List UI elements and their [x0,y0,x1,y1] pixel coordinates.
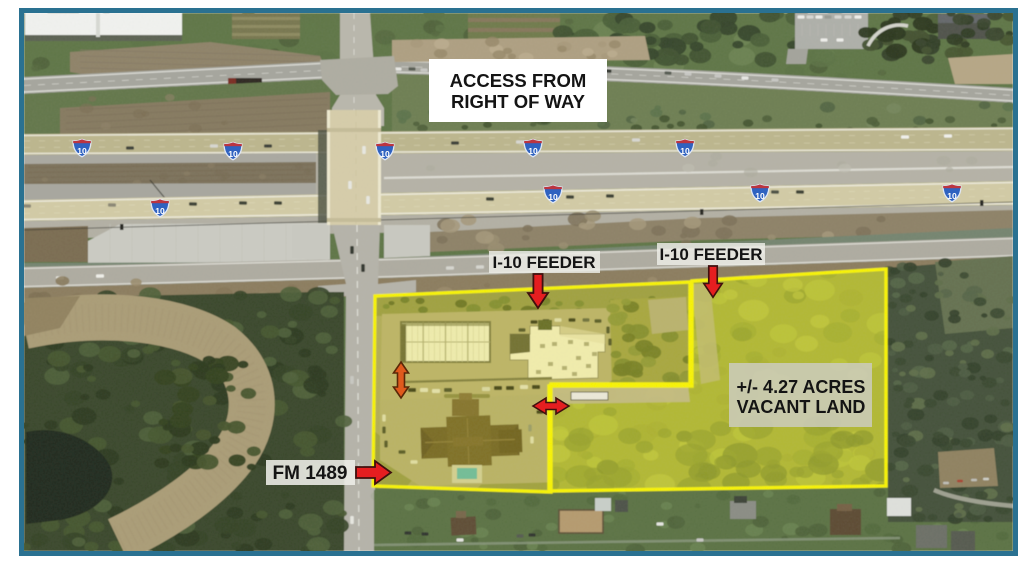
svg-text:I-10 FEEDER: I-10 FEEDER [660,245,763,264]
svg-text:ACCESS FROM: ACCESS FROM [450,70,587,91]
svg-text:FM 1489: FM 1489 [273,463,348,484]
svg-text:RIGHT OF WAY: RIGHT OF WAY [451,91,586,112]
svg-text:VACANT LAND: VACANT LAND [737,397,866,417]
svg-text:+/- 4.27 ACRES: +/- 4.27 ACRES [737,377,866,397]
svg-text:I-10 FEEDER: I-10 FEEDER [493,253,596,272]
